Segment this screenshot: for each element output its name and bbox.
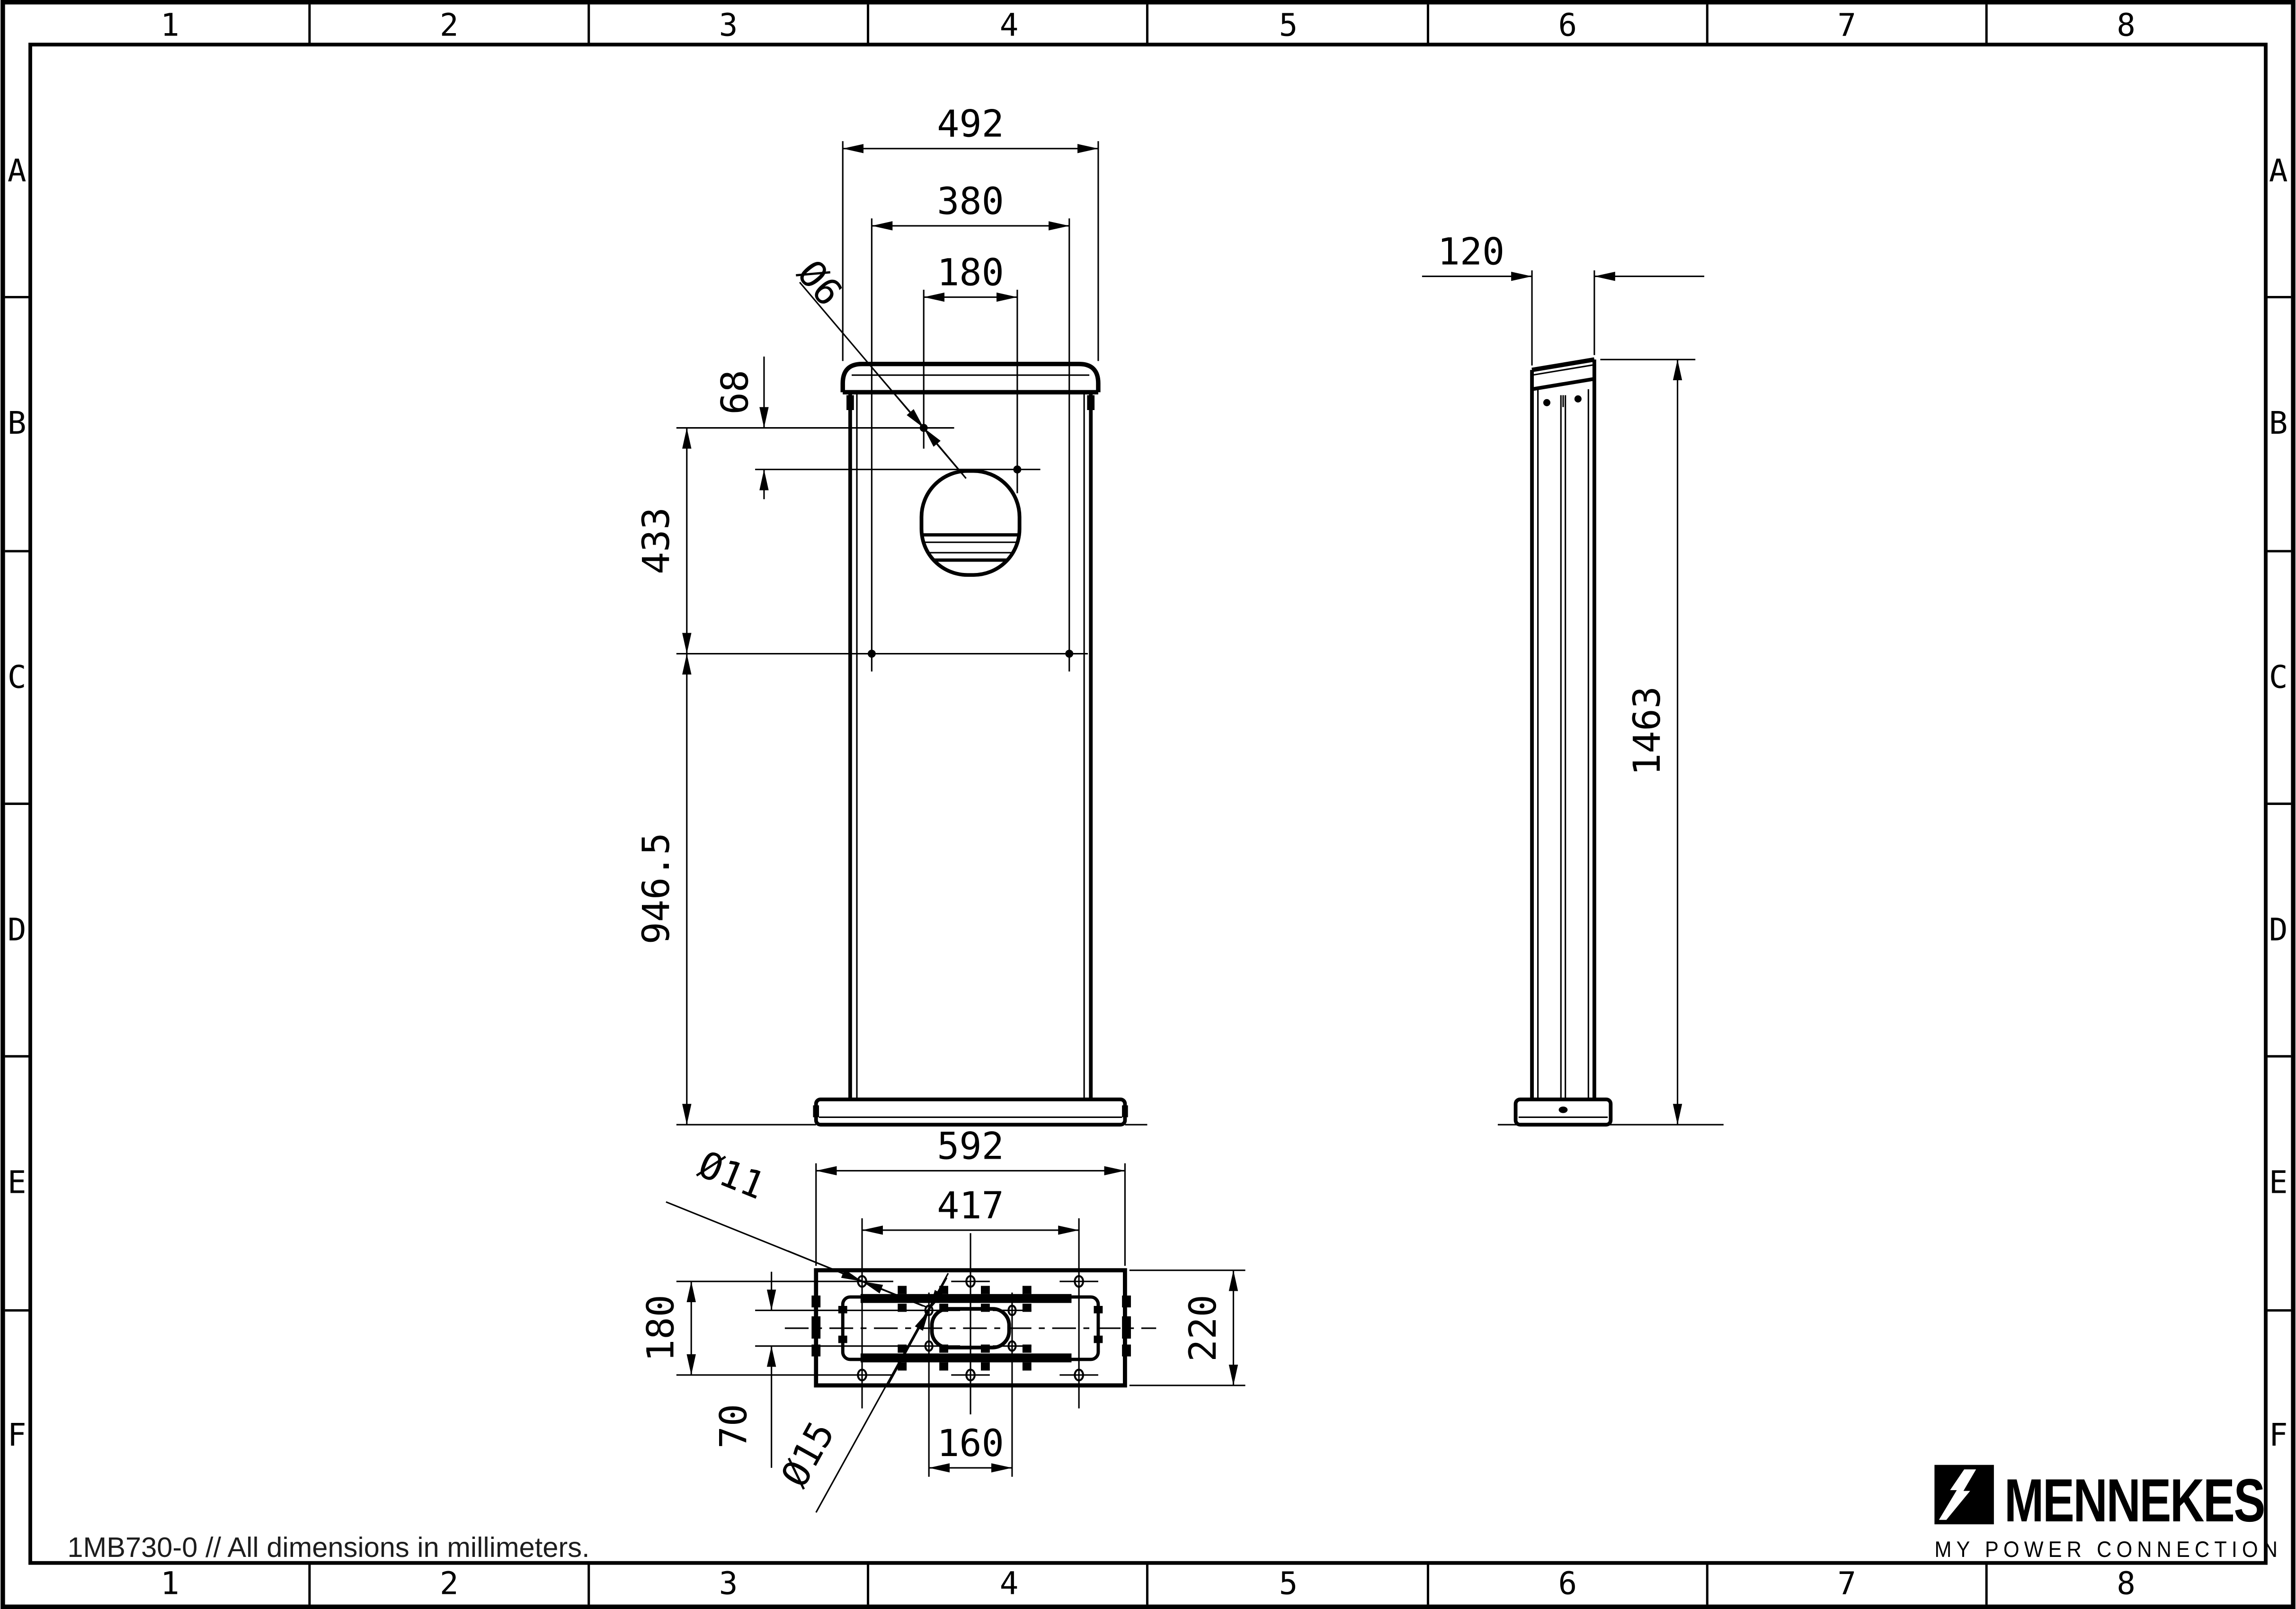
lightning-bolt-icon — [1934, 1465, 1994, 1525]
grid-col-label: 3 — [719, 1565, 738, 1602]
grid-row-label: A — [8, 152, 27, 189]
grid-row-label: E — [2269, 1164, 2288, 1200]
dim-bottom-cable-span-x: 160 — [937, 1422, 1004, 1465]
grid-col-label: 2 — [440, 7, 459, 43]
dim-front-upper-hole-dia: Ø6 — [789, 252, 850, 314]
dim-side-total-height: 1463 — [1626, 686, 1669, 776]
grid-col-label: 7 — [1837, 1565, 1856, 1602]
grid-row-label: D — [8, 912, 27, 948]
grid-labels: 1 2 3 4 5 6 7 8 1 2 3 4 5 6 7 8 A B C D … — [8, 7, 2288, 1601]
grid-row-label: B — [8, 405, 27, 441]
dim-bottom-cable-span-y: 70 — [712, 1404, 755, 1448]
dim-front-lower-body-height: 946.5 — [635, 832, 678, 944]
mennekes-logo: MENNEKES MY POWER CONNECTION — [1934, 1465, 2282, 1562]
dim-bottom-anchor-span-x: 417 — [937, 1184, 1004, 1227]
grid-row-label: D — [2269, 912, 2288, 948]
grid-col-label: 8 — [2117, 1565, 2136, 1602]
grid-col-label: 6 — [1558, 1565, 1577, 1602]
dim-bottom-anchor-dia: Ø11 — [693, 1143, 771, 1208]
grid-col-label: 1 — [160, 1565, 179, 1602]
grid-row-label: B — [2269, 405, 2288, 441]
bottom-view: 592 417 160 180 70 220 Ø11 Ø15 — [640, 1125, 1246, 1512]
grid-col-label: 4 — [1000, 1565, 1019, 1602]
grid-row-label: A — [2269, 152, 2288, 189]
dim-front-hole-rows-distance: 433 — [635, 507, 678, 574]
grid-row-label: E — [8, 1164, 27, 1200]
dim-front-upper-hole-span: 180 — [937, 251, 1004, 294]
grid-col-label: 6 — [1558, 7, 1577, 43]
grid-col-label: 2 — [440, 1565, 459, 1602]
grid-row-label: F — [2269, 1417, 2288, 1453]
grid-col-label: 1 — [160, 7, 179, 43]
grid-col-label: 5 — [1279, 1565, 1298, 1602]
engineering-drawing-sheet: 1 2 3 4 5 6 7 8 1 2 3 4 5 6 7 8 A B C D … — [0, 0, 2296, 1609]
dim-front-lower-hole-span: 380 — [937, 180, 1004, 223]
brand-wordmark: MENNEKES — [2004, 1467, 2264, 1535]
sheet-frame: 1 2 3 4 5 6 7 8 1 2 3 4 5 6 7 8 A B C D … — [3, 2, 2293, 1607]
front-view: 492 380 180 433 946.5 68 Ø6 — [635, 103, 1147, 1125]
dim-front-cap-width: 492 — [937, 103, 1004, 146]
grid-col-label: 5 — [1279, 7, 1298, 43]
brand-tagline: MY POWER CONNECTION — [1934, 1537, 2282, 1562]
grid-col-label: 7 — [1837, 7, 1856, 43]
charging-socket-cutout — [922, 471, 1020, 575]
dim-bottom-base-width: 592 — [937, 1125, 1004, 1168]
dim-bottom-anchor-span-y: 180 — [640, 1295, 683, 1362]
dim-bottom-base-depth: 220 — [1182, 1295, 1225, 1362]
dim-side-depth: 120 — [1438, 230, 1505, 273]
grid-row-label: C — [8, 659, 27, 696]
drawing-number-note: 1MB730-0 // All dimensions in millimeter… — [67, 1531, 589, 1563]
grid-col-label: 4 — [1000, 7, 1019, 43]
grid-col-label: 3 — [719, 7, 738, 43]
side-view: 120 1463 — [1422, 230, 1724, 1125]
dim-front-cap-to-hole-offset: 68 — [713, 370, 756, 414]
grid-row-label: C — [2269, 659, 2288, 696]
grid-ticks — [5, 4, 2291, 1604]
grid-col-label: 8 — [2117, 7, 2136, 43]
grid-row-label: F — [8, 1417, 27, 1453]
